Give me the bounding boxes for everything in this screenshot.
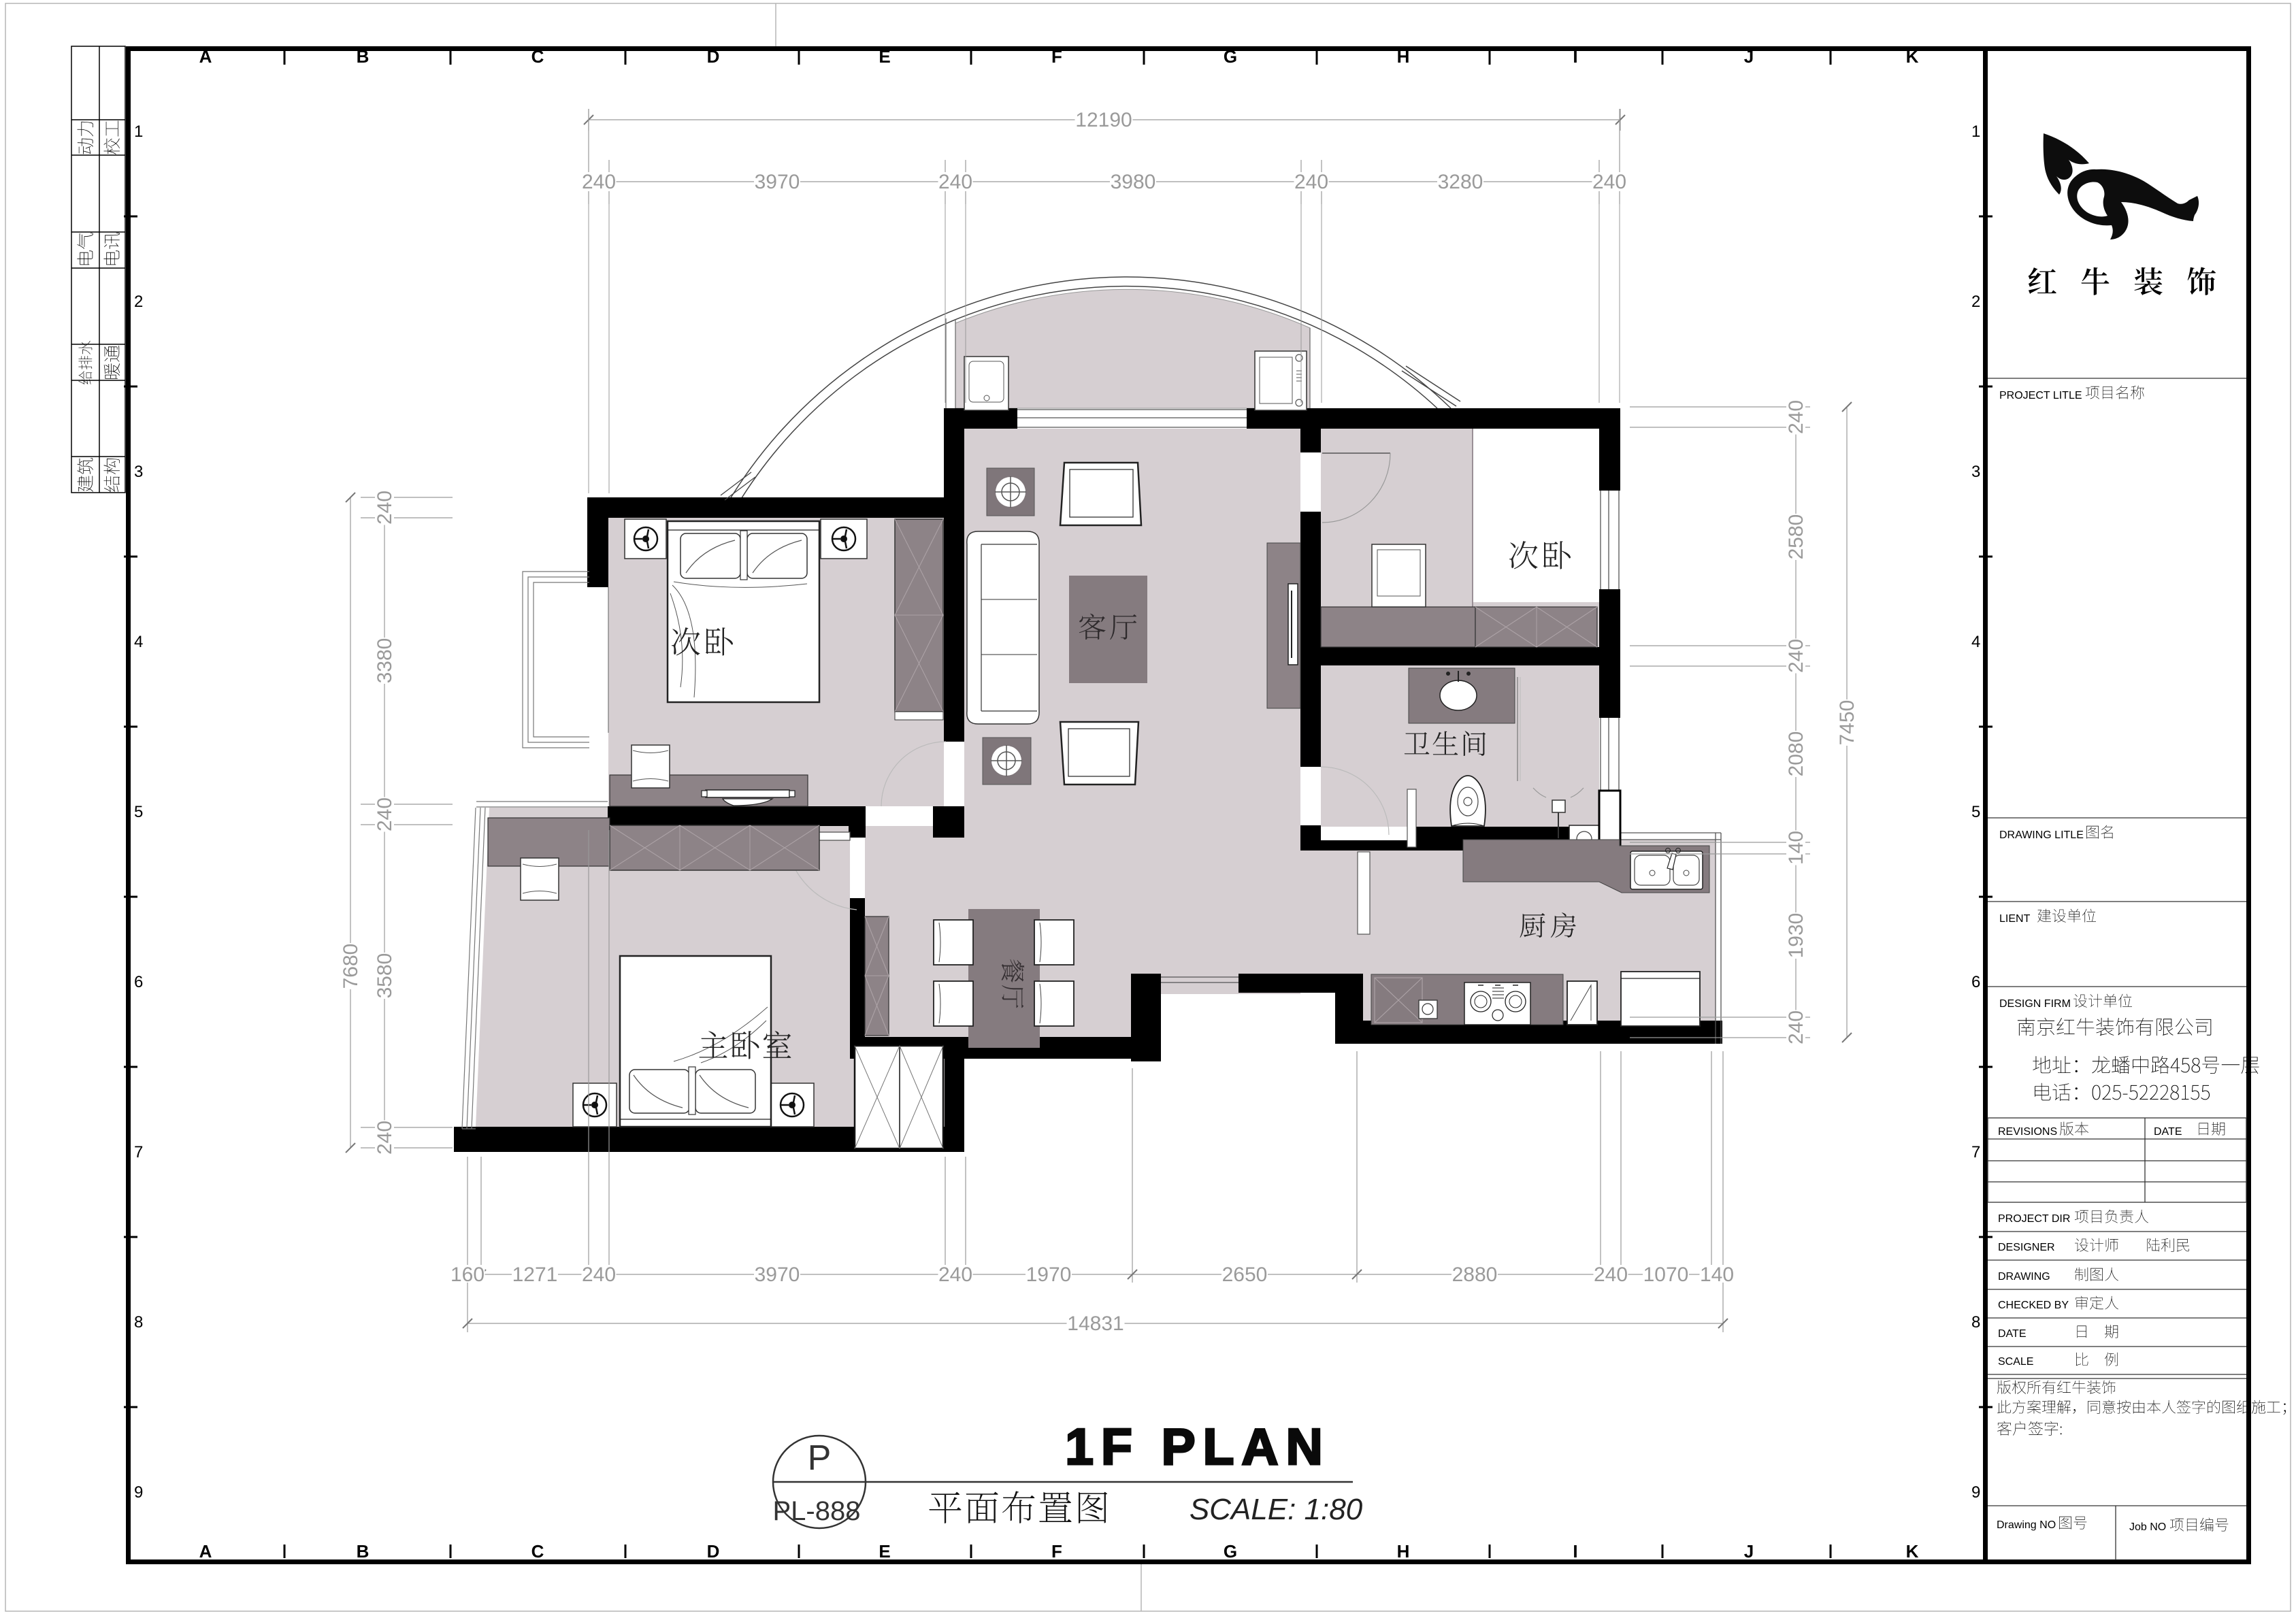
svg-text:K: K	[1906, 46, 1919, 67]
svg-text:1F PLAN: 1F PLAN	[1065, 1418, 1330, 1475]
svg-text:2880: 2880	[1452, 1264, 1498, 1286]
svg-text:240: 240	[1294, 171, 1328, 193]
svg-text:7450: 7450	[1836, 700, 1858, 746]
svg-text:8: 8	[134, 1313, 143, 1332]
svg-text:E: E	[879, 46, 890, 67]
svg-text:SCALE: 1:80: SCALE: 1:80	[1190, 1493, 1363, 1526]
svg-text:2: 2	[1971, 293, 1980, 311]
svg-text:H: H	[1397, 1541, 1410, 1562]
svg-text:CHECKED BY: CHECKED BY	[1998, 1300, 2069, 1311]
svg-text:SCALE: SCALE	[1998, 1356, 2033, 1368]
svg-text:3970: 3970	[755, 1264, 800, 1286]
svg-text:240: 240	[938, 1264, 972, 1286]
svg-text:P: P	[808, 1438, 832, 1478]
svg-text:6: 6	[1971, 973, 1980, 991]
svg-text:140: 140	[1700, 1264, 1734, 1286]
svg-text:Job NO: Job NO	[2129, 1521, 2166, 1533]
svg-text:DESIGNER: DESIGNER	[1998, 1242, 2055, 1253]
svg-text:12190: 12190	[1075, 109, 1132, 131]
svg-text:140: 140	[1785, 831, 1807, 865]
svg-text:LIENT: LIENT	[1999, 913, 2031, 925]
svg-text:3: 3	[134, 463, 143, 481]
svg-text:DATE: DATE	[1998, 1328, 2026, 1340]
svg-text:240: 240	[374, 797, 396, 831]
svg-text:14831: 14831	[1067, 1312, 1124, 1335]
svg-text:3980: 3980	[1111, 171, 1156, 193]
svg-text:240: 240	[1785, 639, 1807, 673]
svg-text:D: D	[707, 1541, 720, 1562]
svg-text:I: I	[1573, 46, 1577, 67]
svg-text:DRAWING LITLE: DRAWING LITLE	[1999, 829, 2084, 841]
svg-text:F: F	[1051, 1541, 1062, 1562]
svg-text:7: 7	[1971, 1143, 1980, 1161]
svg-text:Drawing NO: Drawing NO	[1997, 1519, 2056, 1531]
svg-text:5: 5	[134, 803, 143, 821]
svg-text:A: A	[199, 46, 212, 67]
svg-text:F: F	[1051, 46, 1062, 67]
svg-text:REVISIONS: REVISIONS	[1998, 1126, 2057, 1138]
svg-text:4: 4	[1971, 633, 1980, 651]
svg-text:6: 6	[134, 973, 143, 991]
svg-text:G: G	[1224, 1541, 1237, 1562]
svg-text:J: J	[1744, 1541, 1754, 1562]
svg-text:240: 240	[1785, 1010, 1807, 1044]
svg-text:C: C	[531, 46, 544, 67]
svg-text:DESIGN FIRM: DESIGN FIRM	[1999, 998, 2071, 1010]
svg-text:240: 240	[582, 1264, 616, 1286]
svg-text:9: 9	[134, 1483, 143, 1502]
svg-text:1970: 1970	[1026, 1264, 1072, 1286]
svg-text:K: K	[1906, 1541, 1919, 1562]
svg-text:240: 240	[938, 171, 972, 193]
svg-text:3: 3	[1971, 463, 1980, 481]
svg-text:3580: 3580	[374, 953, 396, 999]
svg-text:3970: 3970	[755, 171, 800, 193]
svg-text:A: A	[199, 1541, 212, 1562]
svg-text:DATE: DATE	[2154, 1126, 2182, 1138]
svg-text:4: 4	[134, 633, 143, 651]
svg-text:DRAWING: DRAWING	[1998, 1271, 2050, 1283]
svg-text:5: 5	[1971, 803, 1980, 821]
svg-text:240: 240	[374, 491, 396, 525]
svg-text:D: D	[707, 46, 720, 67]
svg-text:7: 7	[134, 1143, 143, 1161]
svg-text:PROJECT LITLE: PROJECT LITLE	[1999, 390, 2082, 401]
svg-text:PL-888: PL-888	[773, 1496, 861, 1526]
svg-text:240: 240	[374, 1121, 396, 1155]
svg-text:2580: 2580	[1785, 514, 1807, 560]
svg-text:2: 2	[134, 293, 143, 311]
svg-text:3380: 3380	[374, 638, 396, 684]
svg-text:240: 240	[582, 171, 616, 193]
svg-text:1930: 1930	[1785, 913, 1807, 959]
svg-text:240: 240	[1592, 171, 1626, 193]
svg-text:7680: 7680	[340, 944, 362, 989]
svg-text:G: G	[1224, 46, 1237, 67]
svg-text:1070: 1070	[1643, 1264, 1689, 1286]
svg-text:8: 8	[1971, 1313, 1980, 1332]
svg-text:B: B	[357, 1541, 370, 1562]
svg-text:PROJECT DIR: PROJECT DIR	[1998, 1213, 2070, 1225]
svg-text:240: 240	[1594, 1264, 1628, 1286]
svg-text:1: 1	[134, 122, 143, 141]
svg-text:2650: 2650	[1222, 1264, 1268, 1286]
svg-text:3280: 3280	[1438, 171, 1483, 193]
svg-text:2080: 2080	[1785, 731, 1807, 777]
svg-text:J: J	[1744, 46, 1754, 67]
svg-text:B: B	[357, 46, 370, 67]
svg-text:240: 240	[1785, 400, 1807, 434]
svg-text:I: I	[1573, 1541, 1577, 1562]
svg-text:E: E	[879, 1541, 890, 1562]
svg-text:9: 9	[1971, 1483, 1980, 1502]
svg-text:H: H	[1397, 46, 1410, 67]
svg-text:1: 1	[1971, 122, 1980, 141]
svg-text:1271: 1271	[512, 1264, 558, 1286]
svg-text:C: C	[531, 1541, 544, 1562]
